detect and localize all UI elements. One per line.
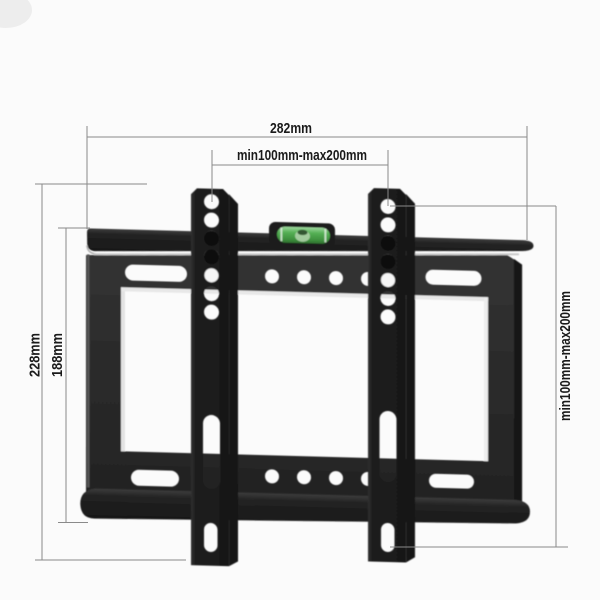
- svg-text:min100mm-max200mm: min100mm-max200mm: [557, 291, 574, 421]
- svg-text:188mm: 188mm: [49, 333, 66, 377]
- svg-text:min100mm-max200mm: min100mm-max200mm: [237, 147, 367, 164]
- svg-text:228mm: 228mm: [27, 333, 44, 377]
- svg-text:282mm: 282mm: [270, 120, 312, 137]
